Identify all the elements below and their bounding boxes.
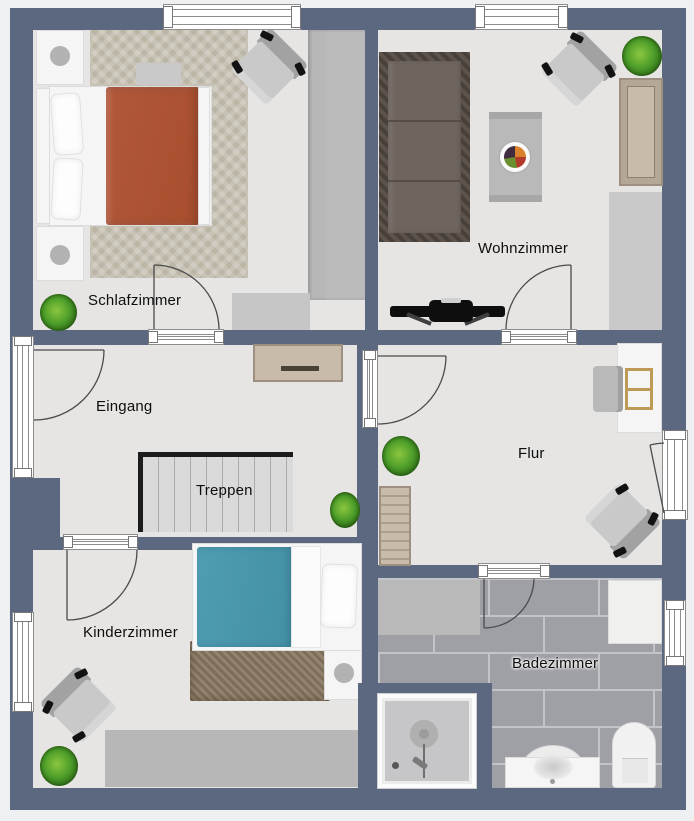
pillow <box>50 157 83 220</box>
window <box>475 4 568 30</box>
tv-trim <box>441 298 461 303</box>
room-label-schlafzimmer: Schlafzimmer <box>88 293 181 308</box>
door-sill-kinderzimmer <box>63 534 138 550</box>
bath-cabinet <box>378 580 480 635</box>
balcony-door-frame <box>662 430 688 520</box>
bed-footboard <box>198 87 210 225</box>
floor-plan: Schlafzimmer Wohnzimmer Eingang Treppen … <box>0 0 694 821</box>
window <box>664 600 686 666</box>
wardrobe <box>308 30 365 300</box>
door-sill-wohnzimmer <box>501 329 577 345</box>
sink-vanity <box>505 757 600 788</box>
plant <box>622 36 662 76</box>
duvet-orange <box>106 87 200 225</box>
door-sill-badezimmer <box>478 563 550 579</box>
bed-sheet <box>291 546 321 648</box>
shower <box>378 694 476 788</box>
window <box>163 4 301 30</box>
bath-mat <box>608 580 662 644</box>
coffee-table <box>489 112 542 202</box>
room-label-badezimmer: Badezimmer <box>512 656 598 671</box>
sideboard <box>619 78 663 186</box>
room-label-eingang: Eingang <box>96 399 152 414</box>
faucet <box>550 779 555 784</box>
desk-chair <box>593 366 623 412</box>
hall-sideboard <box>253 344 343 382</box>
desk-frame <box>625 368 653 410</box>
kids-wardrobe <box>105 730 358 787</box>
hall-shelf <box>379 486 411 566</box>
room-label-kinderzimmer: Kinderzimmer <box>83 625 178 640</box>
lamp <box>50 46 70 66</box>
wall-pillar <box>10 478 60 550</box>
duvet-teal <box>197 547 293 647</box>
entrance-door-frame <box>12 336 34 478</box>
pillow <box>50 92 84 156</box>
door-sill-flur <box>362 350 378 428</box>
door-sill-schlafzimmer <box>148 329 224 345</box>
sink-bowl <box>533 754 573 780</box>
nightstand <box>324 650 362 700</box>
nightstand <box>36 226 84 281</box>
plant <box>40 746 78 786</box>
bedroom-bench <box>136 63 181 85</box>
closet <box>609 192 662 330</box>
plant <box>40 294 77 331</box>
room-label-treppen: Treppen <box>196 483 253 498</box>
lamp <box>334 663 354 683</box>
bed-headboard <box>36 88 50 224</box>
nightstand <box>36 30 84 85</box>
tv-body <box>429 300 473 322</box>
toilet <box>612 722 656 788</box>
pillow <box>320 563 358 628</box>
plant <box>330 492 360 528</box>
room-label-flur: Flur <box>518 446 545 461</box>
plant <box>382 436 420 476</box>
dresser <box>232 293 310 330</box>
room-label-wohnzimmer: Wohnzimmer <box>478 241 568 256</box>
desk <box>617 343 662 433</box>
sideboard-detail <box>281 366 319 371</box>
fruit-bowl <box>500 142 530 172</box>
lamp <box>50 245 70 265</box>
sofa <box>379 52 470 242</box>
window <box>12 612 34 712</box>
shower-drain <box>392 762 399 769</box>
